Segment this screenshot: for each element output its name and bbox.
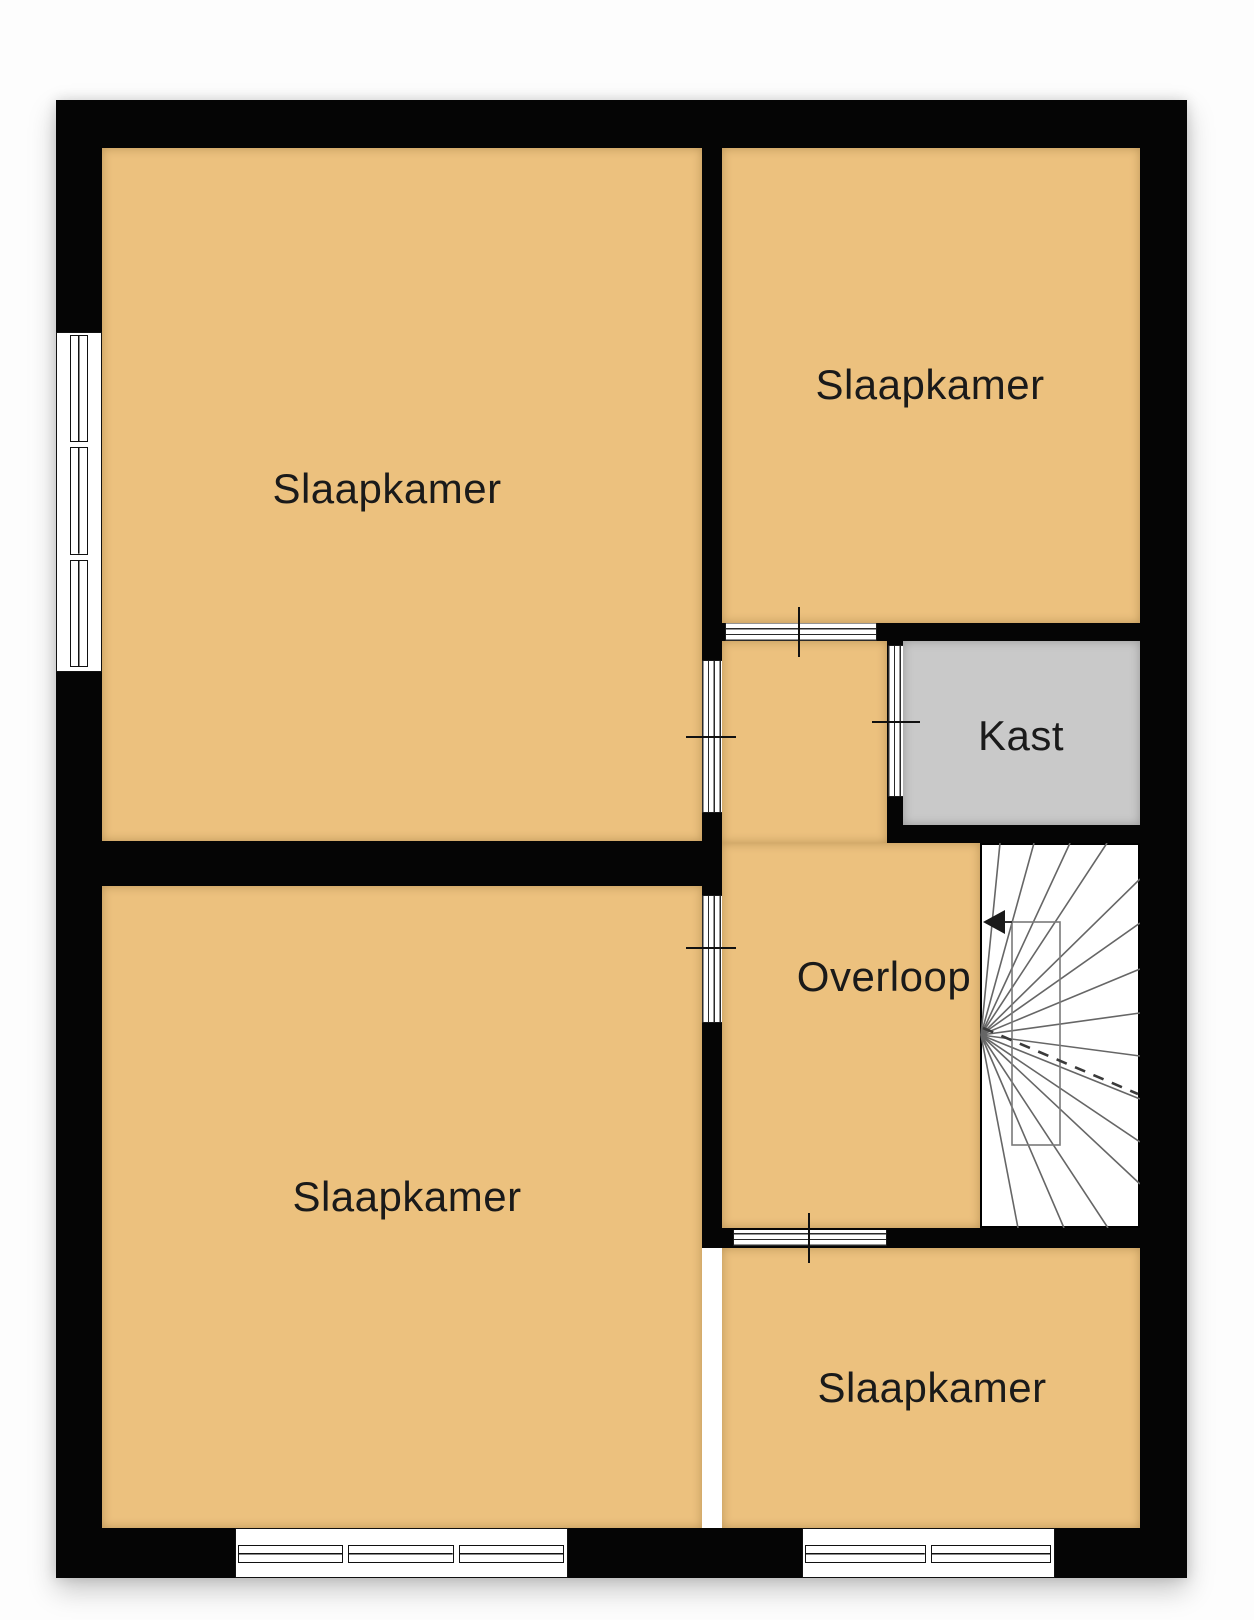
room-label-bedroom-bottom-right: Slaapkamer	[817, 1364, 1046, 1412]
opening-tick	[798, 607, 800, 657]
opening-tick	[686, 736, 736, 738]
room-label-bedroom-bottom-left: Slaapkamer	[292, 1173, 521, 1221]
staircase	[980, 843, 1140, 1228]
opening-landing-top	[725, 623, 877, 641]
opening-tick	[808, 1213, 810, 1263]
wall-vertical-top	[702, 148, 722, 660]
room-label-bedroom-top-right: Slaapkamer	[815, 361, 1044, 409]
room-landing-upper	[722, 641, 887, 843]
floorplan-canvas: Slaapkamer Slaapkamer Slaapkamer Slaapka…	[0, 0, 1254, 1620]
opening-tick	[872, 721, 920, 723]
window-bottom-right	[802, 1528, 1055, 1578]
door-bottom-left-bedroom	[702, 895, 722, 1023]
wall-between-left-bedrooms	[102, 841, 722, 886]
window-left	[56, 332, 102, 672]
room-label-bedroom-top-left: Slaapkamer	[272, 465, 501, 513]
wall-vertical-bottom	[702, 1023, 722, 1248]
opening-tick	[686, 947, 736, 949]
room-label-landing: Overloop	[797, 953, 971, 1001]
room-landing-lower	[722, 843, 980, 1228]
wall-closet-bottom	[887, 825, 1140, 843]
window-bottom-left	[235, 1528, 568, 1578]
room-label-closet: Kast	[978, 712, 1064, 760]
opening-landing-bottom	[733, 1230, 887, 1246]
